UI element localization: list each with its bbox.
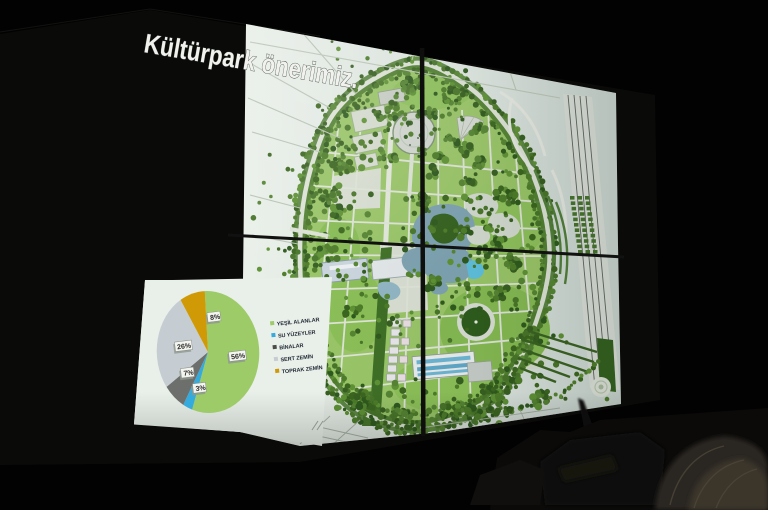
svg-text:8%: 8% <box>210 314 222 322</box>
svg-text:3%: 3% <box>195 385 207 393</box>
svg-text:7%: 7% <box>183 369 195 377</box>
